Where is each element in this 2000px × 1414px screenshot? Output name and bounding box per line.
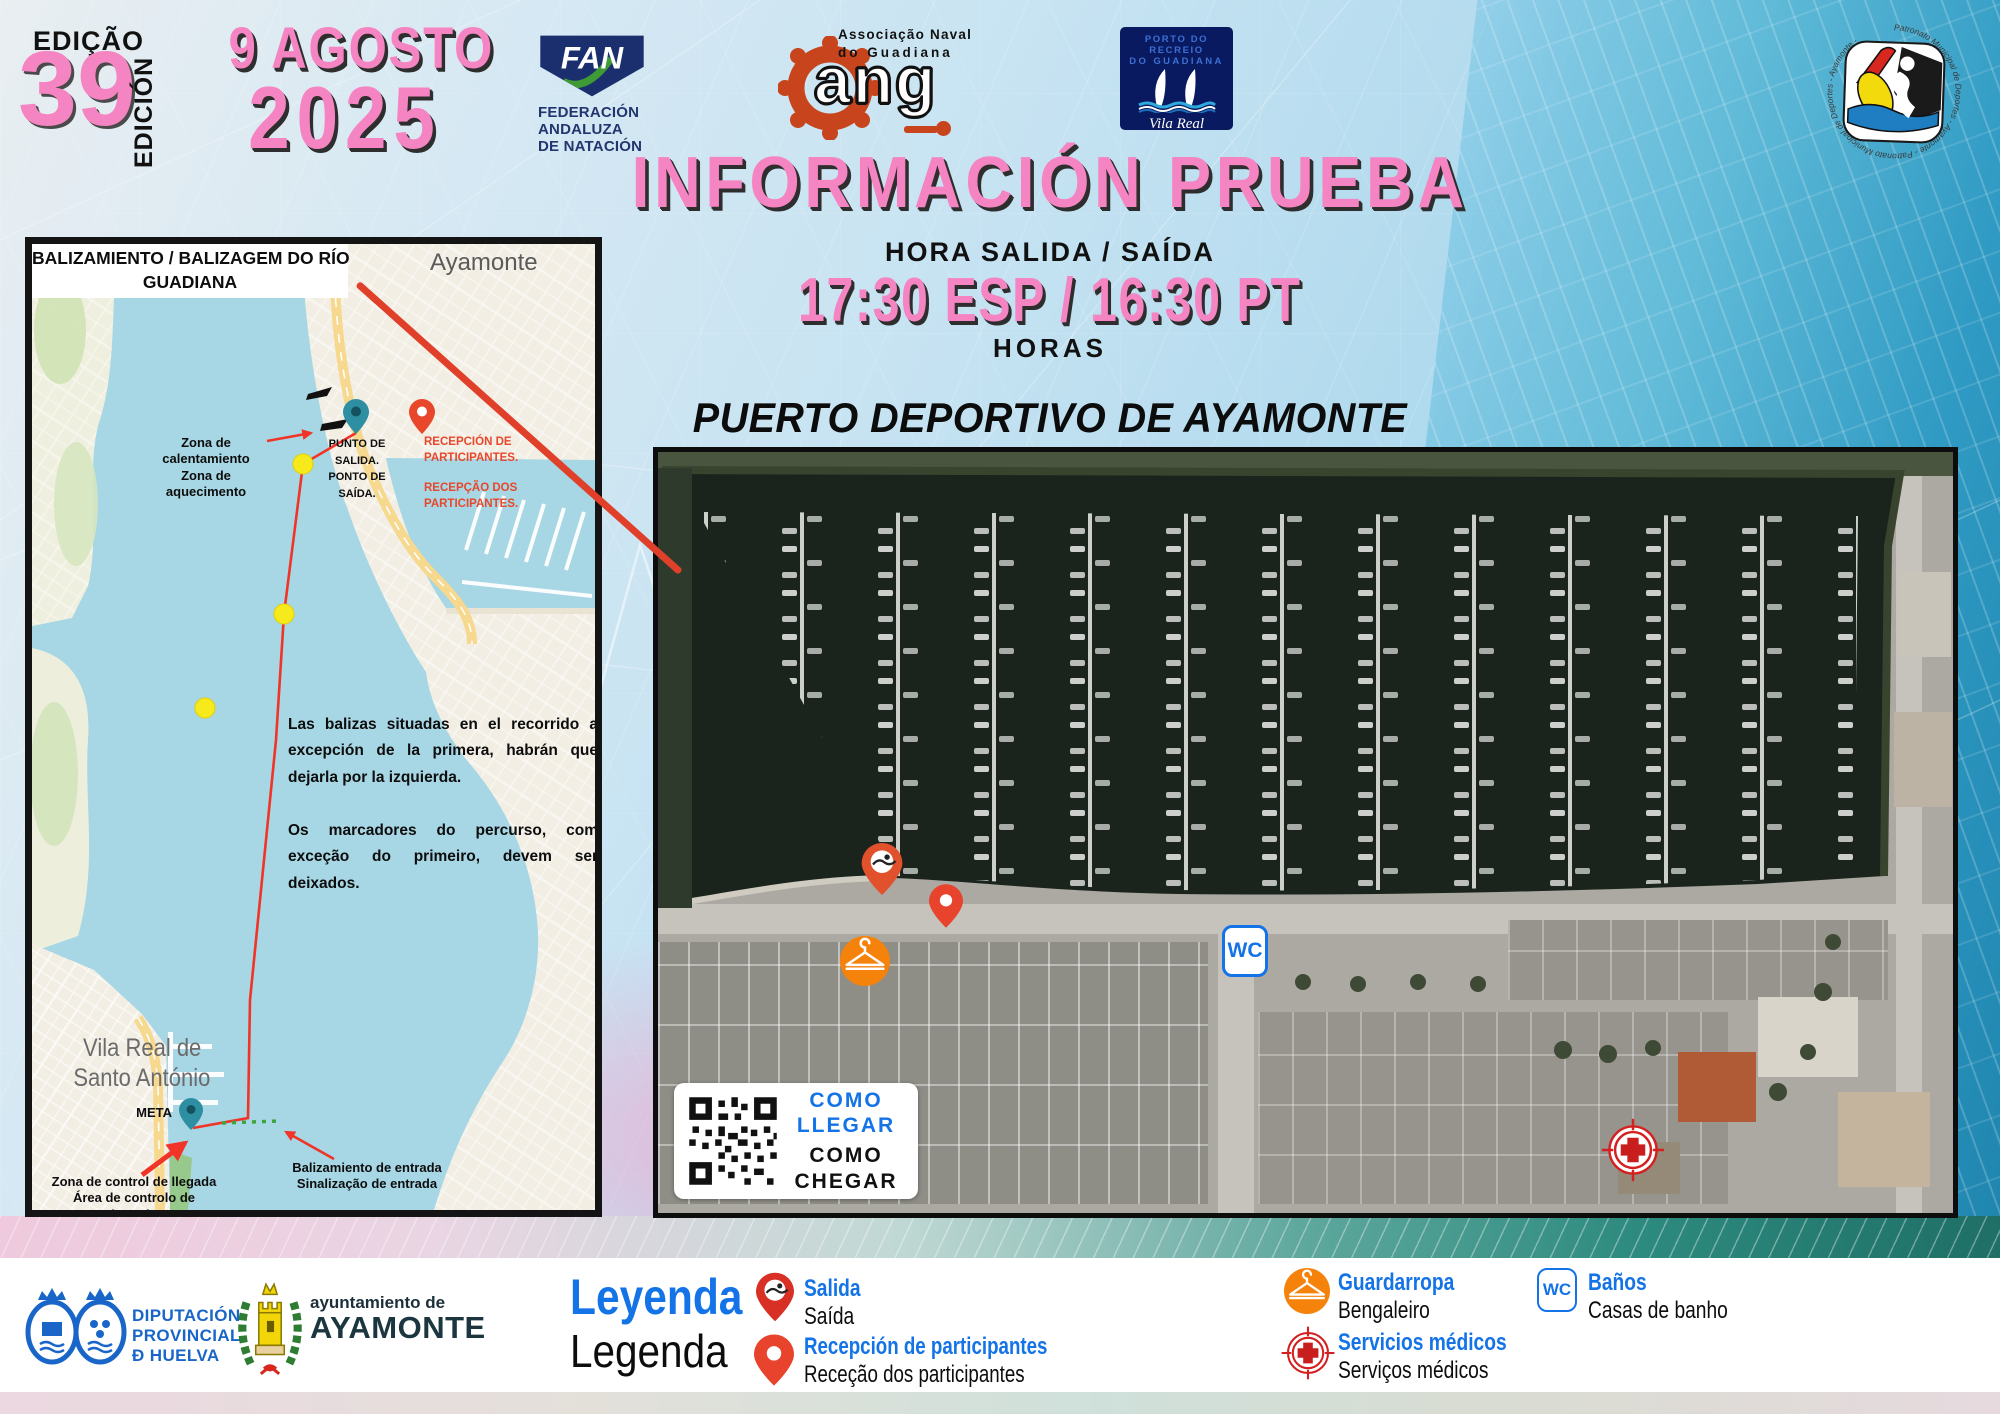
reception-label-es-l2: PARTICIPANTES. xyxy=(424,450,534,466)
sailboats-icon xyxy=(1135,67,1219,113)
medical-marker-aerial xyxy=(1600,1117,1666,1183)
departure-label: HORA SALIDA / SAÍDA xyxy=(530,238,1570,266)
legend-banos-es: Baños xyxy=(1588,1270,1647,1295)
reception-legend-icon xyxy=(754,1334,794,1386)
event-poster: EDIÇÃO 39 EDICIÓN 9 AGOSTO 2025 FAN FEDE… xyxy=(0,0,2000,1414)
start-label-l4: SAÍDA. xyxy=(326,486,388,503)
qr-label-pt-l2: CHEGAR xyxy=(780,1169,912,1195)
warmup-label-es: Zona de calentamiento xyxy=(144,435,268,468)
porto-script-name: Vila Real xyxy=(1120,116,1233,130)
legend-reception-pt: Receção dos participantes xyxy=(804,1362,1025,1387)
ayamonte-crest-icon xyxy=(234,1274,306,1380)
legend-medical-es: Servicios médicos xyxy=(1338,1330,1507,1355)
background-bottom-strip xyxy=(0,1216,2000,1262)
meta-pin-icon xyxy=(179,1098,203,1130)
route-map-panel: BALIZAMIENTO / BALIZAGEM DO RÍO GUADIANA… xyxy=(25,237,602,1217)
ang-anchor-bar xyxy=(904,126,938,133)
edition-label-es: EDICIÓN xyxy=(130,56,159,168)
ayuntamiento-line2: AYAMONTE xyxy=(310,1312,486,1345)
meta-label: META xyxy=(116,1105,172,1121)
legend-title: Leyenda Legenda xyxy=(570,1272,773,1374)
band-bottom-fade xyxy=(0,1392,2000,1414)
entry-label-es: Balizamiento de entrada xyxy=(292,1160,442,1176)
finish-label-es: Zona de control de llegada xyxy=(46,1174,222,1190)
start-label-l2: SALIDA. xyxy=(326,453,388,470)
page-title: INFORMACIÓN PRUEBA xyxy=(632,146,1469,222)
header-block: INFORMACIÓN PRUEBA HORA SALIDA / SAÍDA 1… xyxy=(530,146,1570,362)
porto-line2: DO GUADIANA xyxy=(1120,56,1233,67)
fan-federation-logo: FAN FEDERACIÓN ANDALUZA DE NATACIÓN xyxy=(538,34,668,155)
patronato-emblem-icon: Patronato Municipal de Deportes - Ayamon… xyxy=(1822,20,1966,164)
finish-label-pt: Área de controlo de chegadas xyxy=(46,1190,222,1217)
city-label-vila-real: Vila Real de Santo António xyxy=(34,1034,250,1093)
legend-guardarropa-pt: Bengaleiro xyxy=(1338,1298,1430,1323)
qr-label-es-l2: LLEGAR xyxy=(780,1113,912,1139)
reception-label-pt-l2: PARTICIPANTES. xyxy=(424,496,534,512)
start-label-l1: PUNTO DE xyxy=(326,436,388,453)
legend-salida-es: Salida xyxy=(804,1276,861,1301)
svg-text:FAN: FAN xyxy=(561,40,625,75)
diputacion-line1: DIPUTACIÓN xyxy=(132,1306,241,1326)
salida-legend-icon xyxy=(756,1272,794,1322)
legend-medical-pt: Serviços médicos xyxy=(1338,1358,1488,1383)
reception-label-es-l1: RECEPCIÓN DE xyxy=(424,434,534,450)
guardarropa-legend-icon xyxy=(1284,1268,1330,1314)
start-label-l3: PONTO DE xyxy=(326,469,388,486)
city-label-ayamonte: Ayamonte xyxy=(430,249,538,277)
medical-legend-icon xyxy=(1280,1324,1336,1382)
porto-line1: PORTO DO RECREIO xyxy=(1120,34,1233,56)
porto-recreio-logo: PORTO DO RECREIO DO GUADIANA Vila Real D… xyxy=(1120,27,1233,130)
map-title-line1: BALIZAMIENTO / BALIZAGEM DO RÍO xyxy=(32,247,348,271)
legend-title-pt: Legenda xyxy=(570,1328,728,1374)
qr-code xyxy=(686,1094,780,1188)
salida-pin-aerial xyxy=(861,843,903,895)
ang-association-logo: Associação Naval do Guadiana ang xyxy=(786,14,956,149)
map-title-box: BALIZAMIENTO / BALIZAGEM DO RÍO GUADIANA xyxy=(32,244,348,298)
qr-directions-box: COMO LLEGAR COMO CHEGAR xyxy=(674,1083,918,1199)
ang-anchor-knob xyxy=(936,121,951,136)
map-title-line2: GUADIANA xyxy=(32,271,348,295)
diputacion-line2: PROVINCIAL xyxy=(132,1326,241,1346)
reception-pin-aerial xyxy=(929,884,963,928)
patronato-deportes-logo: Patronato Municipal de Deportes - Ayamon… xyxy=(1822,20,1966,164)
qr-label-es-l1: COMO xyxy=(780,1088,912,1114)
wc-legend-icon: WC xyxy=(1537,1268,1577,1312)
guardarropa-marker-aerial xyxy=(840,936,890,986)
date-line2: 2025 xyxy=(248,74,442,162)
warmup-label-pt: Zona de aquecimento xyxy=(144,468,268,501)
departure-time: 17:30 ESP / 16:30 PT xyxy=(798,268,1301,333)
reception-label-pt-l1: RECEPÇÃO DOS xyxy=(424,480,534,496)
hours-label: HORAS xyxy=(530,335,1570,362)
wc-marker-aerial: WC xyxy=(1222,925,1268,977)
legend-salida-pt: Saída xyxy=(804,1304,854,1329)
map-note-pt: Os marcadores do percurso, com exceção d… xyxy=(288,818,598,897)
qr-label-pt-l1: COMO xyxy=(780,1143,912,1169)
fan-shield-icon: FAN xyxy=(538,34,646,98)
venue-title: PUERTO DEPORTIVO DE AYAMONTE xyxy=(693,394,1407,442)
fan-name-line1: FEDERACIÓN xyxy=(538,105,668,122)
legend-banos-pt: Casas de banho xyxy=(1588,1298,1728,1323)
event-date: 9 AGOSTO 2025 xyxy=(205,20,485,162)
legend-guardarropa-es: Guardarropa xyxy=(1338,1270,1454,1295)
ang-acronym: ang xyxy=(814,42,937,118)
fan-name-line2: ANDALUZA xyxy=(538,122,668,139)
map-note-es: Las balizas situadas en el recorrido a e… xyxy=(288,712,598,791)
diputacion-huelva-crest-icon xyxy=(24,1278,128,1376)
legend-reception-es: Recepción de participantes xyxy=(804,1334,1047,1359)
entry-label-pt: Sinalização de entrada xyxy=(292,1176,442,1192)
legend-title-es: Leyenda xyxy=(570,1272,742,1322)
edition-number: 39 xyxy=(18,36,136,142)
diputacion-line3: Ð HUELVA xyxy=(132,1346,241,1366)
